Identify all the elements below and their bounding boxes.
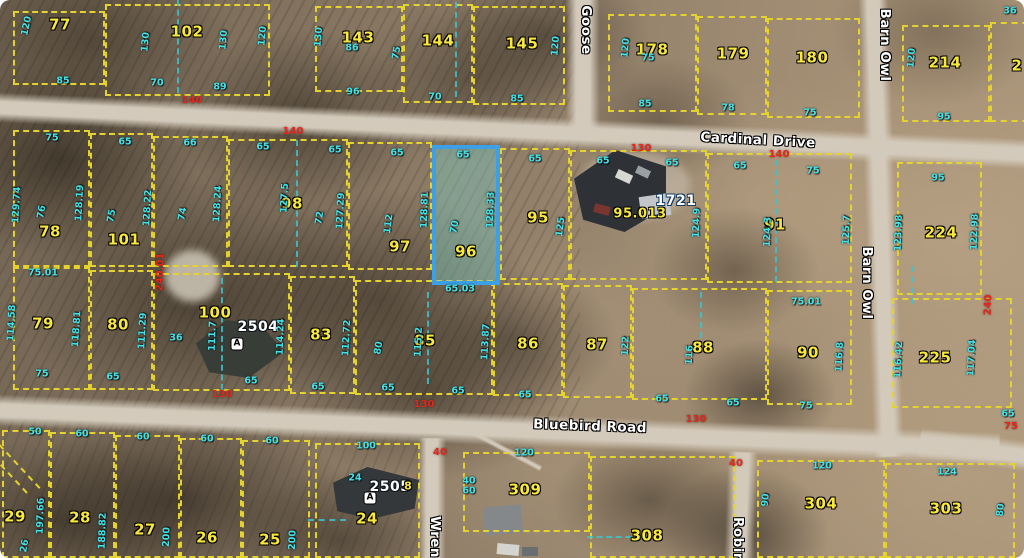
dim-label: 127.5 xyxy=(279,183,290,214)
parcel-number-80: 80 xyxy=(107,318,129,333)
parcel-number-144: 144 xyxy=(422,34,455,49)
parcel-number-100: 100 xyxy=(199,306,232,321)
dim-label: 66 xyxy=(183,138,196,148)
parcel-number-97: 97 xyxy=(389,240,411,255)
dim-label: 116.8 xyxy=(834,342,845,373)
road-dim-label: 130 xyxy=(631,144,652,154)
dim-label: 96 xyxy=(346,87,359,97)
road-dim-label: 240 xyxy=(984,294,995,315)
dim-label: 78 xyxy=(721,103,734,113)
dim-label: 70 xyxy=(428,92,441,102)
dim-label: 129.74 xyxy=(11,186,22,223)
parcel-214 xyxy=(902,25,990,122)
road-dim-label: 130 xyxy=(212,390,233,400)
dim-label: 124 xyxy=(937,467,957,477)
parcel-number-25: 25 xyxy=(259,533,281,548)
dim-label: 36 xyxy=(169,333,182,343)
dim-label: 65 xyxy=(244,376,257,386)
dim-label: 8 xyxy=(404,481,412,492)
parcel-144 xyxy=(403,4,473,103)
dim-label: 75 xyxy=(803,108,816,118)
dim-label: 122 xyxy=(621,336,632,356)
dim-label: 128.19 xyxy=(74,184,85,221)
survey-dashed-line xyxy=(221,278,223,390)
dim-label: 120 xyxy=(514,448,534,458)
parcel-number-179: 179 xyxy=(717,47,750,62)
dim-label: 75 xyxy=(35,369,48,379)
parcel-102 xyxy=(105,4,270,96)
parcel-number-102: 102 xyxy=(171,25,204,40)
dim-label: 120 xyxy=(906,48,917,69)
dim-label: 65 xyxy=(451,386,464,396)
dim-label: 90 xyxy=(761,493,772,507)
dim-label: 70 xyxy=(150,78,163,88)
parcel-number-77: 77 xyxy=(49,18,71,33)
dim-label: 128.33 xyxy=(486,192,497,229)
map-canvas: 7710214314414517817918021427810198979695… xyxy=(0,0,1024,558)
dim-label: 130 xyxy=(218,30,229,51)
dim-label: 75.01 xyxy=(791,297,821,307)
road-dim-label: 75 xyxy=(1004,422,1018,432)
dim-label: 24 xyxy=(348,473,361,483)
dim-label: 124.9 xyxy=(692,208,703,238)
dim-label: 120 xyxy=(812,461,832,471)
dim-label: 115.2 xyxy=(413,327,424,358)
parcel-number-86: 86 xyxy=(517,337,539,352)
dim-label: 65 xyxy=(733,161,746,171)
dim-label: 95 xyxy=(931,173,944,183)
parcel-number-180: 180 xyxy=(796,51,829,66)
dim-label: 111.29 xyxy=(137,312,148,349)
dim-label: 125 xyxy=(555,217,567,238)
parcel-number-101: 101 xyxy=(108,233,141,248)
road-label-wren: Wren xyxy=(427,516,441,558)
dim-label: 116 xyxy=(685,345,696,365)
dim-label: 114.24 xyxy=(276,319,287,356)
road-dim-label: 40 xyxy=(729,459,743,469)
parcel-number-303: 303 xyxy=(930,502,963,517)
dim-label: 70 xyxy=(449,220,461,235)
dim-label: 125.7 xyxy=(842,215,853,245)
dim-label: 65 xyxy=(381,383,394,393)
dim-label: 60 xyxy=(200,434,213,444)
parcel-number-214: 214 xyxy=(929,56,962,71)
road-label-robin: Robin xyxy=(730,517,744,558)
house-symbol-a: A xyxy=(364,492,377,505)
dim-label: 80 xyxy=(373,341,385,356)
dim-label: 60 xyxy=(136,432,149,442)
parcel-number-28: 28 xyxy=(69,511,91,526)
dim-label: 200 xyxy=(162,527,172,547)
dim-label: 130 xyxy=(313,27,324,48)
dim-label: 123.98 xyxy=(894,215,905,252)
dim-label: 85 xyxy=(510,94,523,104)
road-dim-label: 40 xyxy=(433,448,447,458)
vehicle xyxy=(522,547,538,556)
parcel-number-2: 2 xyxy=(1012,59,1023,74)
parcel-number-309: 309 xyxy=(509,483,542,498)
dim-label: 75 xyxy=(799,401,812,411)
dim-label: 100 xyxy=(356,441,376,451)
road-label-goose: Goose xyxy=(578,5,592,54)
dim-label: 127.29 xyxy=(335,192,346,229)
road-dim-label: 130 xyxy=(414,400,435,410)
dim-label: 36 xyxy=(1003,6,1016,16)
parcel-179 xyxy=(697,16,767,115)
dim-label: 60 xyxy=(75,429,88,439)
dim-label: 65 xyxy=(390,148,403,158)
parcel-number-225: 225 xyxy=(919,351,952,366)
parcel-number-79: 79 xyxy=(32,317,54,332)
dim-label: 75.01 xyxy=(28,268,58,278)
dim-label: 65 xyxy=(456,150,469,160)
dim-label: 130 xyxy=(140,32,151,53)
dim-label: 75 xyxy=(641,53,654,63)
parcel-number-78: 78 xyxy=(39,225,61,240)
dim-label: 65 xyxy=(311,382,324,392)
parcel-number-27: 27 xyxy=(134,523,156,538)
dim-label: 116.42 xyxy=(893,341,904,378)
dim-label: 65 xyxy=(118,137,131,147)
dim-label: 60 xyxy=(462,486,475,496)
dim-label: 124.3 xyxy=(763,217,774,247)
dim-label: 75 xyxy=(806,166,819,176)
parcel-label-95-013: 95.013 xyxy=(613,208,666,221)
dim-label: 74 xyxy=(177,207,189,222)
dim-label: 65 xyxy=(106,372,119,382)
dim-label: 60 xyxy=(265,436,278,446)
parcel-number-87: 87 xyxy=(586,338,608,353)
dim-label: 122.98 xyxy=(970,214,981,251)
dim-label: 85 xyxy=(638,99,651,109)
dim-label: 65 xyxy=(528,154,541,164)
road-dim-label: 130 xyxy=(686,415,707,425)
parcel-number-95: 95 xyxy=(527,211,549,226)
dim-label: 85 xyxy=(56,76,69,86)
dim-label: 65 xyxy=(665,158,678,168)
parcel-number-26: 26 xyxy=(196,531,218,546)
dim-label: 75 xyxy=(106,209,118,224)
parcel-180 xyxy=(767,18,860,118)
dim-label: 50 xyxy=(28,427,41,437)
dim-label: 76 xyxy=(36,205,48,220)
survey-dashed-line xyxy=(177,0,179,93)
dim-label: 65 xyxy=(726,398,739,408)
parcel-number-29: 29 xyxy=(4,510,26,525)
survey-dashed-line xyxy=(308,519,346,521)
dim-label: 117.04 xyxy=(966,339,977,376)
dim-label: 65 xyxy=(596,156,609,166)
dim-label: 188.82 xyxy=(98,513,109,550)
dim-label: 72 xyxy=(314,211,326,226)
road-label-barn-owl: Barn Owl xyxy=(859,247,873,320)
parcel-number-145: 145 xyxy=(506,37,539,52)
road-dim-label: 140 xyxy=(182,96,203,106)
parcel-225 xyxy=(892,298,1012,408)
parcel-number-24: 24 xyxy=(356,512,378,527)
road-label-barn-owl-top: Barn Owl xyxy=(877,9,891,82)
dim-label: 26 xyxy=(19,539,31,554)
road-dim-label: 140 xyxy=(283,127,304,137)
dim-label: 65 xyxy=(655,394,668,404)
vehicle xyxy=(497,543,520,556)
dim-label: 128.81 xyxy=(420,192,431,229)
dim-label: 120 xyxy=(550,36,561,57)
dim-label: 75 xyxy=(391,46,403,61)
road-dim-label: 240.01 xyxy=(155,253,166,292)
parcel-number-224: 224 xyxy=(925,226,958,241)
parcel-number-304: 304 xyxy=(805,497,838,512)
dim-label: 65 xyxy=(328,145,341,155)
dim-label: 112 xyxy=(383,214,395,235)
dim-label: 65.03 xyxy=(445,284,475,294)
house-symbol-a: A xyxy=(231,338,244,351)
dim-label: 65 xyxy=(1001,409,1014,419)
dim-label: 120 xyxy=(620,38,631,59)
dim-label: 65 xyxy=(518,390,531,400)
survey-dashed-line xyxy=(455,2,457,97)
house-number-2504: 2504 xyxy=(238,320,279,334)
parcel-143 xyxy=(315,6,403,92)
survey-dashed-line xyxy=(911,266,913,304)
dim-label: 89 xyxy=(213,82,226,92)
dim-label: 200 xyxy=(288,530,298,550)
dim-label: 128.24 xyxy=(212,185,223,222)
dim-label: 65 xyxy=(256,142,269,152)
dim-label: 118.81 xyxy=(71,310,83,347)
parcel-number-90: 90 xyxy=(797,346,819,361)
dim-label: 111.7 xyxy=(208,321,219,351)
dim-label: 86 xyxy=(345,43,358,53)
dim-label: 120 xyxy=(257,26,268,47)
road-dim-label: 140 xyxy=(769,150,790,160)
dim-label: 80 xyxy=(996,503,1007,517)
dim-label: 75 xyxy=(45,133,58,143)
parcel-number-83: 83 xyxy=(310,328,332,343)
dim-label: 128.22 xyxy=(142,189,153,226)
dim-label: 197.66 xyxy=(36,498,47,535)
dim-label: 113.87 xyxy=(480,323,491,360)
dim-label: 114.58 xyxy=(6,304,17,341)
dim-label: 112.72 xyxy=(341,319,352,356)
parcel-number-308: 308 xyxy=(631,529,664,544)
dim-label: 95 xyxy=(937,112,950,122)
parcel-number-96: 96 xyxy=(455,245,477,260)
